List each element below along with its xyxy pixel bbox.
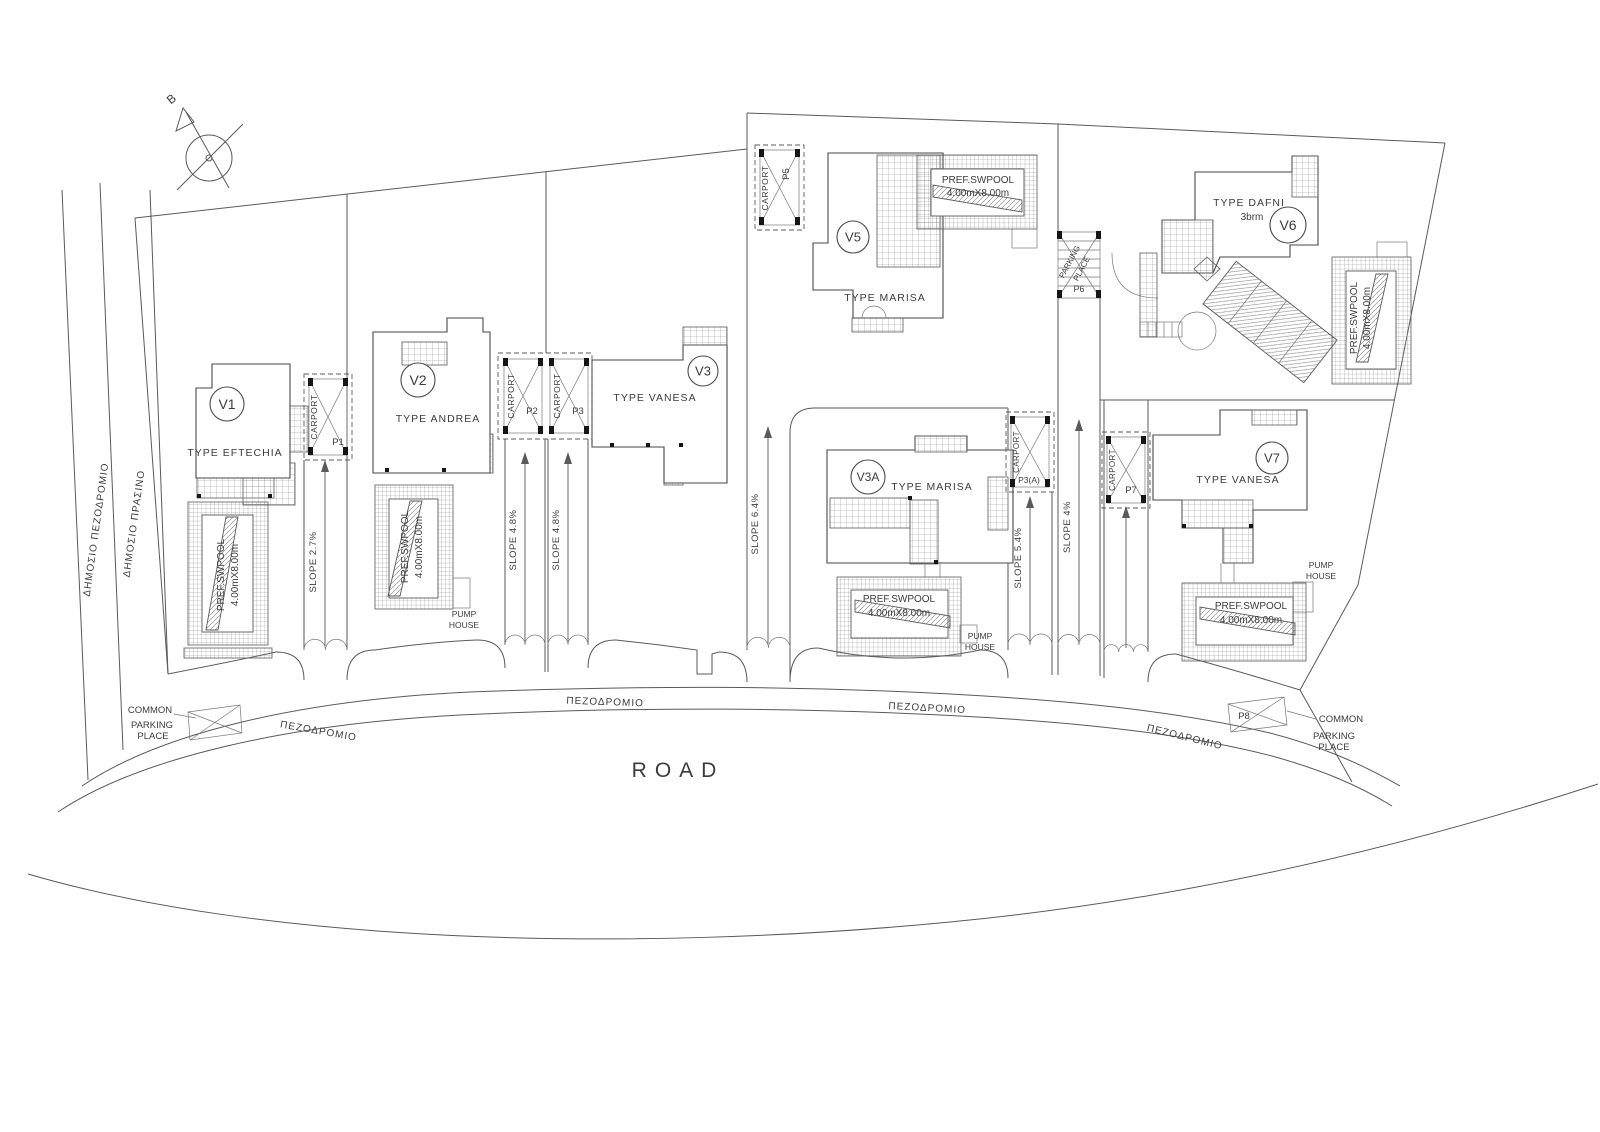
- carport-p5-id: P5: [781, 168, 792, 180]
- villa-v6-type: TYPE DAFNI: [1213, 197, 1285, 209]
- site-plan-drawing: BΔΗΜΟΣΙΟ ΠΕΖΟΔΡΟΜΙΟΔΗΜΟΣΙΟ ΠΡΑΣΙΝΟV1TYPE…: [0, 0, 1600, 1132]
- pump-v2-line1: PUMP: [452, 609, 477, 619]
- villa-v7-type: TYPE VANESA: [1196, 474, 1279, 486]
- villa-v3-type: TYPE VANESA: [613, 392, 696, 404]
- sidewalk-label-2: ΠΕΖΟΔΡΟΜΙΟ: [566, 696, 644, 710]
- pool-v7-line2: 4.00mX8.00m: [1220, 615, 1282, 626]
- pool-v6-line2: 4.00mX8.00m: [1362, 287, 1373, 349]
- road-bottom-edge: [28, 784, 1598, 939]
- villa-v6-house: [1112, 156, 1337, 383]
- common-left-line2: PARKING: [131, 720, 173, 731]
- villa-v1-type: TYPE EFTECHIA: [187, 447, 282, 459]
- villa-v3a-type: TYPE MARISA: [891, 481, 973, 493]
- pool-v5-line1: PREF.SWPOOL: [942, 175, 1015, 186]
- slope-p3-label: SLOPE 4.8%: [551, 509, 562, 570]
- compass-label: B: [164, 91, 179, 107]
- pump-v3a-line2: HOUSE: [965, 642, 996, 652]
- villa-v3a-badge: V3A: [857, 470, 880, 484]
- slope-54-label: SLOPE 5.4%: [1013, 527, 1024, 588]
- road-label: ROAD: [632, 759, 725, 782]
- villa-v3-badge: V3: [695, 364, 711, 379]
- carport-p3a-id: P3(A): [1018, 475, 1040, 485]
- common-right-line2: PARKING: [1313, 731, 1355, 742]
- villa-v2-badge: V2: [409, 372, 426, 388]
- pump-v3a-line1: PUMP: [968, 631, 993, 641]
- carport-p3-label: CARPORT: [552, 374, 562, 419]
- common-parking-left-symbol: [174, 705, 242, 740]
- pool-v1-line2: 4.00mX8.00m: [230, 544, 241, 606]
- public-green-label: ΔΗΜΟΣΙΟ ΠΡΑΣΙΝΟ: [122, 469, 148, 578]
- villa-v2-type: TYPE ANDREA: [396, 413, 481, 425]
- parking-p8-id: P8: [1238, 711, 1250, 722]
- slope-p2-label: SLOPE 4.8%: [508, 509, 519, 570]
- carport-p3-id: P3: [572, 406, 584, 417]
- pool-v2-line1: PREF.SWPOOL: [400, 510, 411, 583]
- villa-v3-house: [592, 327, 727, 485]
- pool-v3a-line1: PREF.SWPOOL: [863, 594, 936, 605]
- common-right-line3: PLACE: [1318, 742, 1349, 753]
- sidewalk-bottom-edge: [58, 709, 1392, 812]
- carport-p3a-label: CARPORT: [1012, 431, 1021, 473]
- common-left-line1: COMMON: [128, 705, 172, 716]
- slope-4-label: SLOPE 4%: [1062, 501, 1073, 553]
- villa-v7-badge: V7: [1264, 451, 1280, 466]
- common-left-line3: PLACE: [137, 731, 168, 742]
- pool-v6-line1: PREF.SWPOOL: [1349, 281, 1360, 354]
- villa-v6-badge: V6: [1279, 217, 1296, 233]
- pool-v5-line2: 4.00mX8.00m: [947, 188, 1009, 199]
- carport-p7-id: P7: [1125, 485, 1137, 496]
- pool-v7-line1: PREF.SWPOOL: [1215, 601, 1288, 612]
- pool-v3a-line2: 4.00mX8.00m: [868, 608, 930, 619]
- carport-p2-id: P2: [526, 406, 538, 417]
- villa-v5-type: TYPE MARISA: [844, 292, 926, 304]
- carport-p1-label: CARPORT: [309, 395, 319, 440]
- carport-p7-label: CARPORT: [1108, 449, 1117, 491]
- pool-v1-line1: PREF.SWPOOL: [216, 538, 227, 611]
- carport-p5-label: CARPORT: [760, 166, 770, 211]
- villa-v7-house: [1153, 410, 1307, 583]
- pump-v7-line2: HOUSE: [1306, 571, 1337, 581]
- sidewalk-label-1: ΠΕΖΟΔΡΟΜΙΟ: [279, 719, 357, 743]
- pump-v7-line1: PUMP: [1309, 560, 1334, 570]
- villa-v3a-house: [827, 436, 1013, 577]
- slope-p1-label: SLOPE 2.7%: [308, 531, 319, 592]
- public-sidewalk-label: ΔΗΜΟΣΙΟ ΠΕΖΟΔΡΟΜΙΟ: [82, 462, 112, 597]
- slope-64-label: SLOPE 6.4%: [750, 493, 761, 554]
- north-compass-icon: [176, 108, 243, 190]
- site-plan: BΔΗΜΟΣΙΟ ΠΕΖΟΔΡΟΜΙΟΔΗΜΟΣΙΟ ΠΡΑΣΙΝΟV1TYPE…: [0, 0, 1600, 1132]
- pool-v2-line2: 4.00mX8.00m: [414, 516, 425, 578]
- pool-v1: [184, 502, 272, 658]
- villa-v2-house: [373, 318, 493, 473]
- public-strip-lines: [62, 183, 168, 780]
- carport-p2-label: CARPORT: [506, 374, 516, 419]
- villa-v1-badge: V1: [218, 396, 235, 412]
- road-lines: [28, 687, 1598, 939]
- villa-v1-house: [196, 364, 308, 505]
- villa-v5-badge: V5: [845, 230, 861, 245]
- parking-p6-id: P6: [1073, 284, 1084, 294]
- sidewalk-label-4: ΠΕΖΟΔΡΟΜΙΟ: [1146, 723, 1224, 752]
- villa-v6-extra: 3brm: [1241, 212, 1264, 223]
- pump-v2-line2: HOUSE: [449, 620, 480, 630]
- carport-p1-id: P1: [332, 437, 344, 448]
- common-right-line1: COMMON: [1319, 714, 1363, 725]
- sidewalk-label-3: ΠΕΖΟΔΡΟΜΙΟ: [888, 701, 966, 716]
